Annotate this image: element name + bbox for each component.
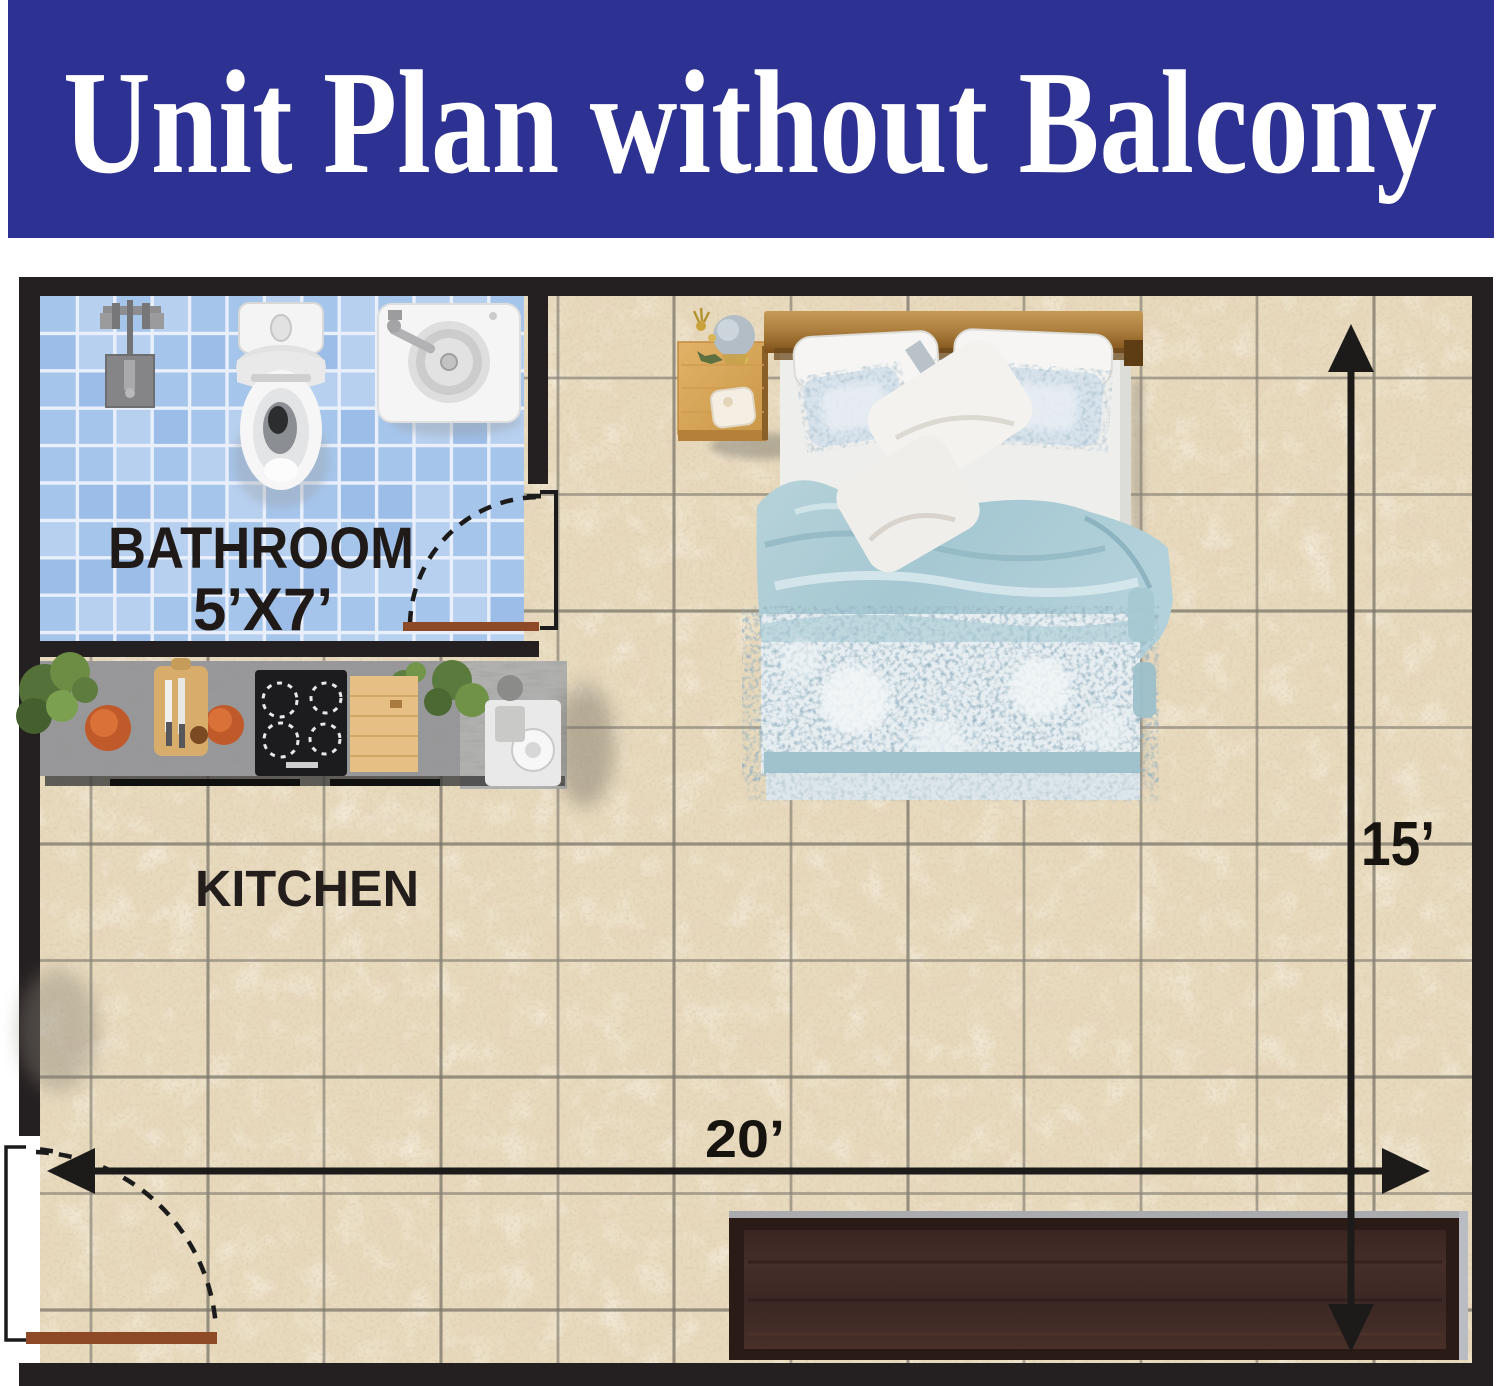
svg-text:20’: 20’ — [705, 1110, 785, 1169]
svg-text:BATHROOM: BATHROOM — [108, 516, 414, 581]
svg-text:Unit Plan without Balcony: Unit Plan without Balcony — [63, 41, 1437, 205]
svg-text:5’X7’: 5’X7’ — [193, 576, 333, 643]
svg-text:15’: 15’ — [1361, 810, 1435, 879]
svg-text:KITCHEN: KITCHEN — [195, 860, 419, 917]
